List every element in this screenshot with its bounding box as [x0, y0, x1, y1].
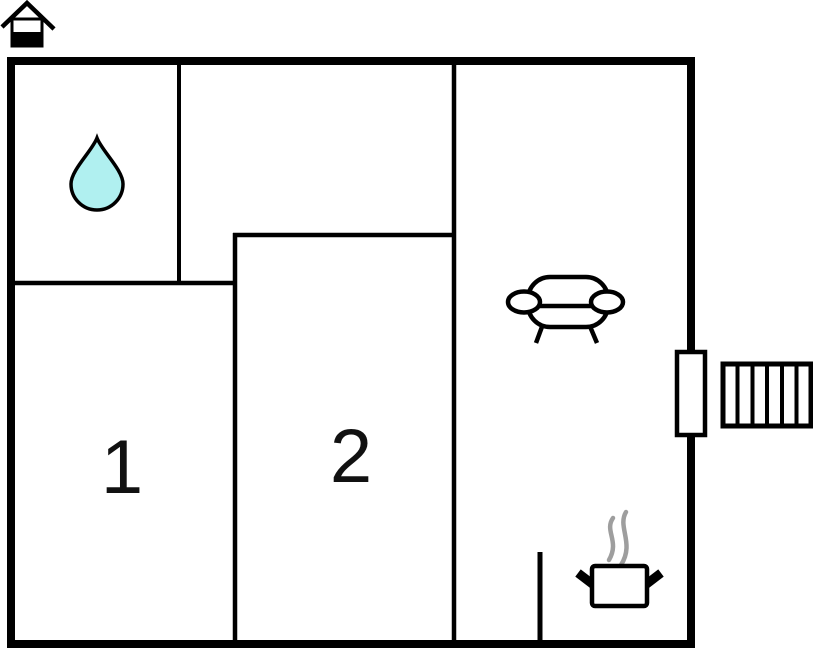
- room-2-label: 2: [330, 414, 372, 499]
- floorplan-drawing: 1 2: [0, 0, 813, 652]
- stairs-icon: [723, 364, 811, 426]
- floorplan-canvas: 1 2: [0, 0, 813, 652]
- house-icon: [2, 3, 54, 46]
- pot-body: [592, 566, 647, 606]
- room-1-label: 1: [101, 425, 143, 510]
- outer-wall: [11, 61, 691, 644]
- sofa-armrest-right: [591, 292, 623, 313]
- door-icon: [677, 352, 705, 435]
- sofa-armrest-left: [508, 292, 540, 313]
- house-base-fill: [12, 32, 42, 46]
